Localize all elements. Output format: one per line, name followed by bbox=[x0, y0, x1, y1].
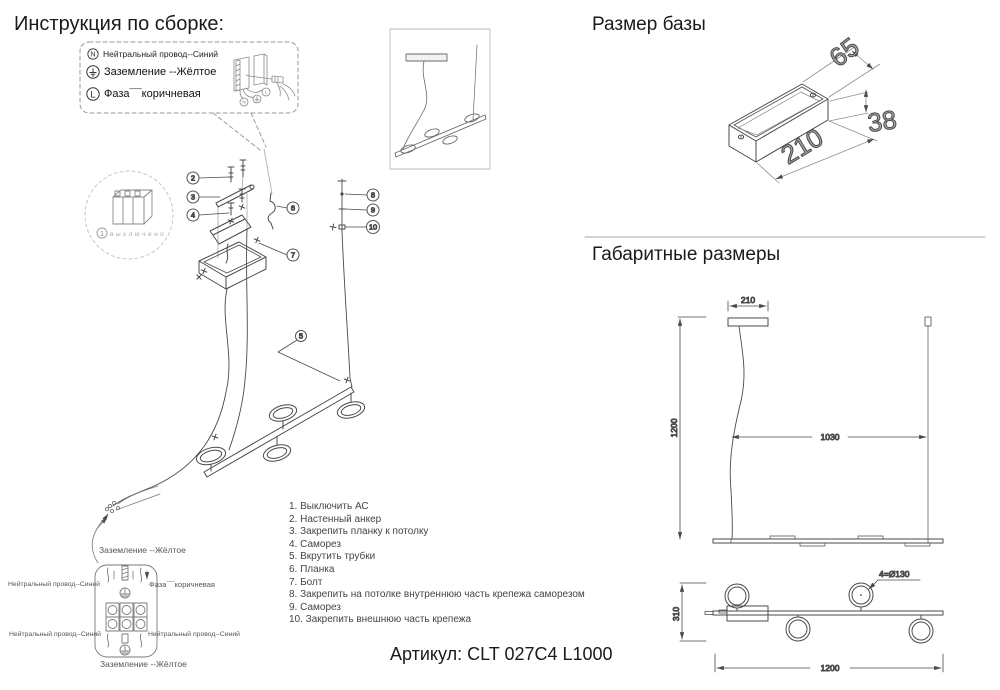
wire-bundle bbox=[105, 486, 160, 513]
front-drop-dim: 1200 bbox=[669, 418, 679, 437]
canopy-assembly bbox=[195, 215, 266, 289]
legend-item-ground: Заземление --Жёлтое bbox=[86, 65, 216, 79]
base-height-dim: 38 bbox=[866, 104, 899, 138]
overall-size-heading: Габаритные размеры bbox=[592, 244, 780, 266]
plus-mark bbox=[195, 273, 203, 281]
step-item: 5. Вкрутить трубки bbox=[289, 551, 585, 564]
lamp-bar bbox=[194, 376, 366, 477]
anchor-icon bbox=[228, 167, 234, 182]
screw-icon bbox=[240, 160, 246, 177]
callout-cable-top: 8 bbox=[371, 191, 375, 200]
terminal-grid bbox=[106, 603, 147, 631]
svg-text:L: L bbox=[90, 90, 95, 101]
suspension-cable bbox=[330, 179, 352, 387]
ring-diameter-label: 4=Ø130 bbox=[879, 569, 910, 579]
plus-mark bbox=[330, 224, 337, 231]
step-item: 4. Саморез bbox=[289, 539, 585, 552]
callout-screw: 4 bbox=[191, 211, 195, 220]
plus-mark bbox=[238, 203, 246, 211]
step-item: 6. Планка bbox=[289, 564, 585, 577]
wiring-neutral-left2-label: Нейтральный провод--Синий bbox=[9, 631, 101, 638]
support-tube bbox=[229, 230, 247, 450]
circuit-breaker-icon bbox=[113, 190, 152, 224]
phase-icon: L bbox=[86, 87, 100, 101]
plank bbox=[216, 185, 253, 207]
ring bbox=[786, 615, 810, 641]
instruction-sheet: N L 1 выключено bbox=[0, 0, 1000, 690]
legend-item-label: Нейтральный провод--Синий bbox=[103, 49, 218, 59]
callout-hook: 6 bbox=[291, 204, 295, 213]
thumbnail-lamp bbox=[390, 29, 490, 169]
ring bbox=[725, 584, 749, 611]
base-length-dim: 210 bbox=[776, 122, 829, 170]
plus-mark bbox=[253, 236, 261, 244]
power-off-number: 1 bbox=[100, 231, 104, 238]
wiring-neutral-left-label: Нейтральный провод--Синий bbox=[8, 581, 100, 588]
step-item: 9. Саморез bbox=[289, 602, 585, 615]
callout-tubes: 5 bbox=[299, 332, 303, 341]
plus-mark bbox=[200, 267, 208, 275]
front-span-dim: 1030 bbox=[821, 432, 840, 442]
base-size-drawing: 65 38 210 bbox=[729, 31, 898, 183]
power-off-note: выключено bbox=[110, 231, 166, 238]
screwdriver-icon bbox=[246, 75, 272, 79]
assembly-steps-list: 1. Выключить АС 2. Настенный анкер 3. За… bbox=[289, 501, 585, 627]
wiring-phase-right-label: Фаза¯¯коричневая bbox=[149, 580, 215, 589]
power-cord bbox=[113, 289, 229, 506]
step-item: 8. Закрепить на потолке внутреннюю часть… bbox=[289, 589, 585, 602]
svg-text:N: N bbox=[90, 50, 95, 59]
legend-item-neutral: N Нейтральный провод--Синий bbox=[87, 48, 218, 60]
front-view: 210 1200 1030 bbox=[669, 295, 943, 546]
callout-cable-mid: 9 bbox=[371, 206, 375, 215]
step-item: 7. Болт bbox=[289, 577, 585, 590]
plus-mark bbox=[211, 433, 219, 441]
plan-height-dim: 310 bbox=[671, 607, 681, 621]
front-cord bbox=[730, 326, 744, 539]
cord-hook bbox=[268, 193, 275, 229]
sketch-n-label: N bbox=[242, 100, 245, 105]
step-item: 1. Выключить АС bbox=[289, 501, 585, 514]
callout-bolt: 7 bbox=[291, 251, 295, 260]
callout-cable-bot: 10 bbox=[369, 223, 377, 232]
article-number: Артикул: CLT 027C4 L1000 bbox=[390, 644, 613, 665]
wiring-ground-bottom-label: Заземление --Жёлтое bbox=[100, 659, 187, 669]
wiring-ground-top-label: Заземление --Жёлтое bbox=[99, 545, 186, 555]
hand-sketch bbox=[277, 83, 295, 100]
legend-item-label: Заземление --Жёлтое bbox=[104, 66, 216, 78]
ground-icon bbox=[255, 97, 259, 102]
ground-icon bbox=[120, 588, 130, 598]
callout-plank: 3 bbox=[191, 193, 195, 202]
breaker-off-note: 1 выключено bbox=[85, 171, 173, 259]
ground-icon bbox=[86, 65, 100, 79]
step-item: 2. Настенный анкер bbox=[289, 514, 585, 527]
base-size-heading: Размер базы bbox=[592, 14, 706, 36]
neutral-icon: N bbox=[87, 48, 99, 60]
wiring-neutral-right-label: Нейтральный провод--Синий bbox=[148, 631, 240, 638]
legend-item-phase: L Фаза¯¯коричневая bbox=[86, 87, 201, 101]
front-canopy-dim: 210 bbox=[741, 295, 755, 305]
assembly-diagram: 1 выключено bbox=[85, 160, 380, 506]
legend-item-label: Фаза¯¯коричневая bbox=[104, 88, 201, 100]
base-dim-lines bbox=[757, 46, 880, 183]
ring bbox=[909, 615, 933, 643]
callout-anchor: 2 bbox=[191, 174, 195, 183]
step-item: 10. Закрепить внешнюю часть крепежа bbox=[289, 614, 585, 627]
base-width-dim: 65 bbox=[824, 31, 865, 72]
plan-length-dim: 1200 bbox=[821, 663, 840, 673]
ring bbox=[849, 583, 873, 611]
legend-wiring-sketch: N L bbox=[234, 54, 295, 106]
page-title: Инструкция по сборке: bbox=[14, 13, 224, 36]
ground-icon bbox=[120, 645, 130, 655]
sketch-l-label: L bbox=[265, 90, 268, 95]
ceiling-plank-parts bbox=[216, 160, 254, 258]
plan-view: 4=Ø130 310 1200 bbox=[671, 569, 943, 673]
step-item: 3. Закрепить планку к потолку bbox=[289, 526, 585, 539]
